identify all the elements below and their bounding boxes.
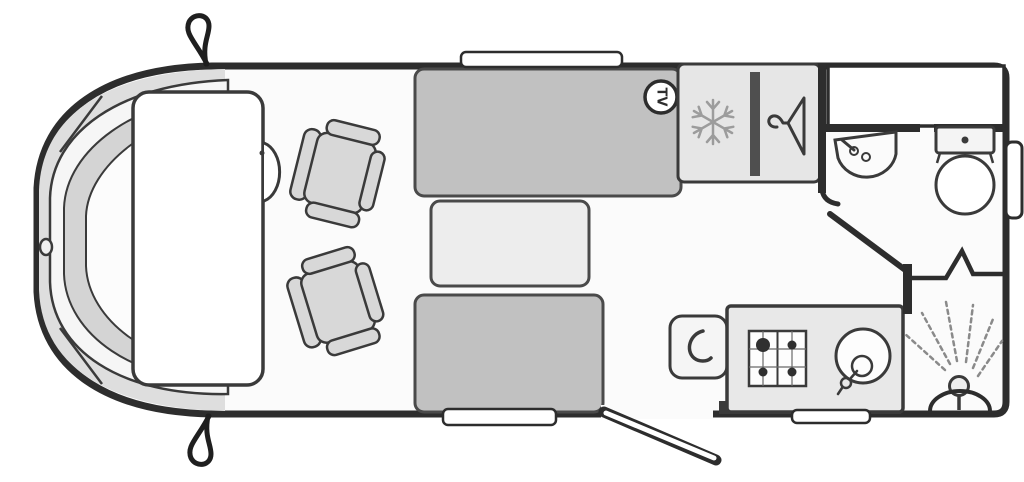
appliance-cabinet [678, 64, 820, 182]
wing-mirror-bottom-icon [190, 416, 211, 464]
toilet [936, 127, 994, 214]
floorplan-drawing: TV [0, 0, 1024, 482]
hob [749, 331, 806, 386]
burner-4 [788, 368, 797, 377]
sofa-bench-bottom [415, 295, 603, 412]
cab-bed [133, 92, 263, 385]
cabinet-divider [750, 72, 760, 176]
fuel-cap [40, 239, 52, 255]
cab [39, 69, 280, 411]
tv-badge: TV [645, 81, 677, 113]
kitchen-flip-shelf [670, 316, 727, 378]
burner-2 [788, 341, 797, 350]
window-top [461, 52, 622, 67]
dinette-table [431, 201, 589, 286]
toilet-flush-button [962, 137, 969, 144]
burner-1 [756, 338, 770, 352]
fridge-wardrobe-unit [678, 64, 820, 182]
window-bottom-left [443, 409, 556, 425]
wing-mirror-top-icon [188, 16, 209, 64]
tv-label: TV [654, 88, 669, 107]
toilet-bowl [936, 156, 994, 214]
shower-wall-stub [903, 264, 912, 314]
entrance-door [601, 405, 716, 460]
window-rear [1006, 142, 1022, 218]
washroom-shelf [828, 66, 1004, 126]
washroom-left-wall [818, 63, 826, 193]
washroom-wall-left-span [826, 124, 920, 132]
sofa-bench-top [415, 69, 681, 196]
window-bottom-right [792, 410, 870, 423]
floorplan-canvas: TV [0, 0, 1024, 482]
cab-side-table-hinge [260, 151, 265, 156]
burner-3 [759, 368, 768, 377]
